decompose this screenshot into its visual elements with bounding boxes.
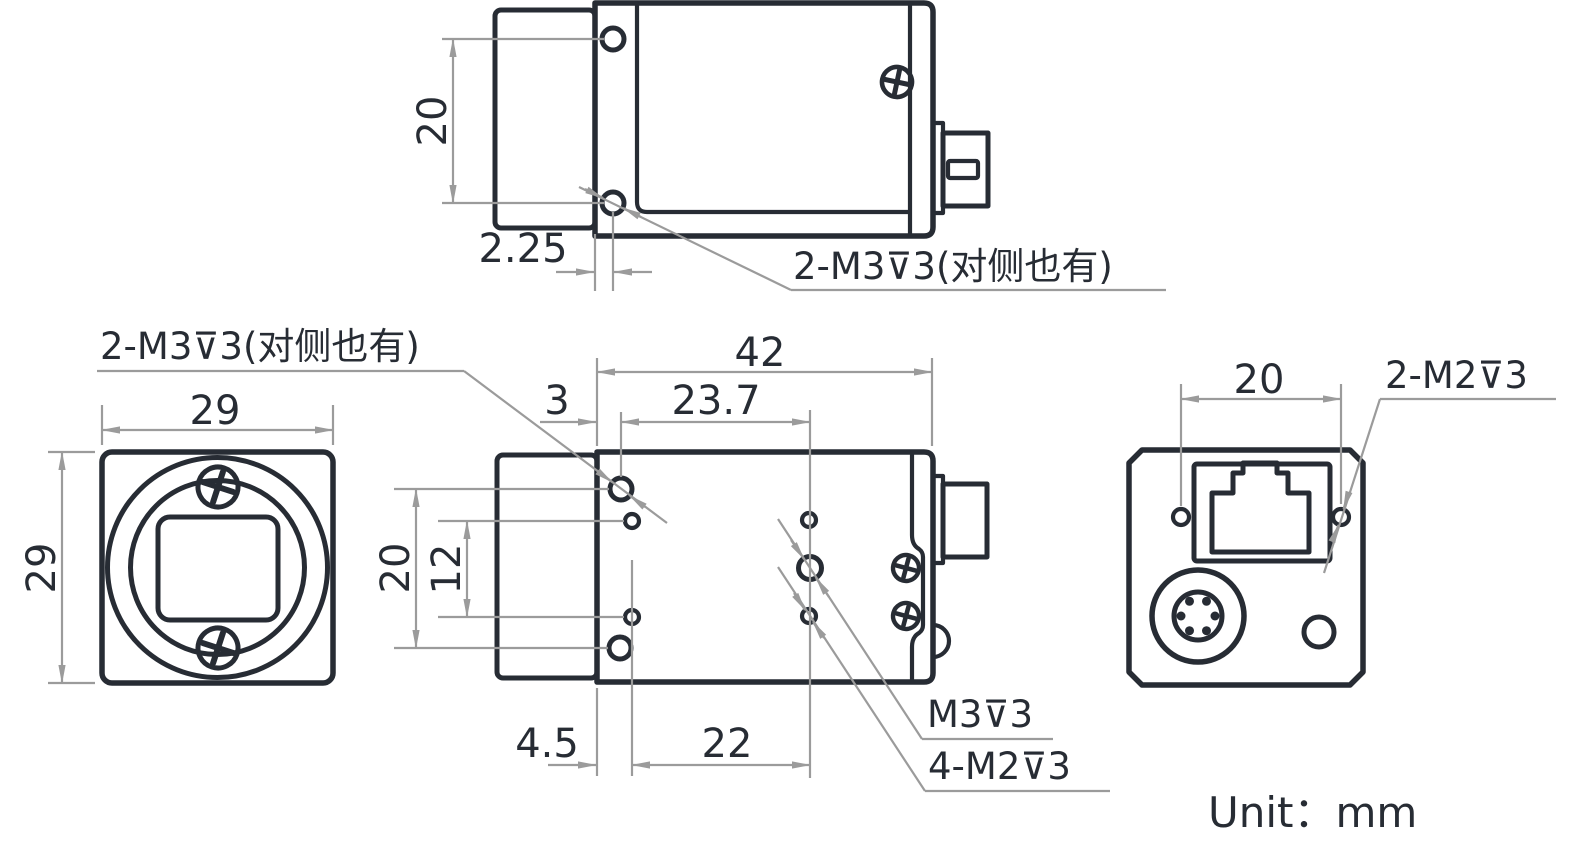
body-outline-top [595, 3, 933, 236]
drawing-canvas: 20 2.25 2-M3⊽3(对侧也有) 29 [0, 0, 1574, 857]
connector-pin [1211, 612, 1220, 621]
phillips-screw [193, 462, 243, 512]
dim-front-to-m3: 3 [544, 378, 569, 424]
dim-body-length: 42 [735, 330, 786, 376]
dim-edge-to-hole: 2.25 [478, 226, 567, 272]
connector-pin [1185, 626, 1194, 635]
phillips-screw [890, 600, 922, 632]
lens-flange-top [495, 10, 595, 228]
thread-label-top: 2-M3⊽3(对侧也有) [793, 245, 1113, 288]
thread-label-back: 2-M2⊽3 [1385, 354, 1528, 397]
thread-label-m2: 4-M2⊽3 [928, 745, 1071, 788]
rear-connector [943, 484, 987, 557]
rear-connector-slot [948, 161, 978, 178]
phillips-screw [193, 623, 243, 673]
thread-label-m3-pair: 2-M3⊽3(对侧也有) [100, 325, 420, 368]
dim-back-hole-spacing: 20 [1234, 357, 1285, 403]
body-outline-side [597, 452, 933, 682]
front-view: 29 29 [19, 388, 333, 683]
dim-front-to-m2: 4.5 [515, 721, 579, 767]
camera-dimension-drawing: 20 2.25 2-M3⊽3(对侧也有) 29 [0, 0, 1574, 857]
rj45-port [1212, 463, 1309, 552]
sensor-window [158, 517, 278, 620]
dim-m2-spacing-v: 12 [424, 544, 470, 595]
dim-front-height: 29 [19, 543, 65, 594]
mounting-hole [602, 28, 624, 50]
top-view: 20 2.25 2-M3⊽3(对侧也有) [410, 3, 1166, 291]
side-view: 42 3 23.7 20 12 4.5 22 2-M3⊽3(对侧也有) M3⊽3 [97, 325, 1110, 791]
connector-pin [1202, 597, 1211, 606]
power-connector [1152, 570, 1244, 662]
unit-note: Unit：mm [1208, 788, 1417, 837]
m3-hole [609, 637, 631, 659]
phillips-screw [890, 552, 922, 584]
dim-m2-spacing-h: 22 [702, 721, 753, 767]
connector-pin [1202, 626, 1211, 635]
led-indicator [1304, 617, 1334, 647]
m2-hole [625, 514, 639, 528]
dim-m3-spacing-v: 20 [373, 543, 419, 594]
back-view: 20 2-M2⊽3 [1129, 354, 1556, 685]
dim-top-hole-spacing: 20 [410, 96, 456, 147]
dim-front-width: 29 [190, 388, 241, 434]
connector-pin [1177, 612, 1186, 621]
m2-hole [1173, 509, 1189, 525]
connector-pin [1185, 597, 1194, 606]
thread-label-m3: M3⊽3 [927, 693, 1033, 736]
front-bezel-seam-top [637, 4, 909, 212]
dim-m3-spacing-h: 23.7 [671, 378, 760, 424]
